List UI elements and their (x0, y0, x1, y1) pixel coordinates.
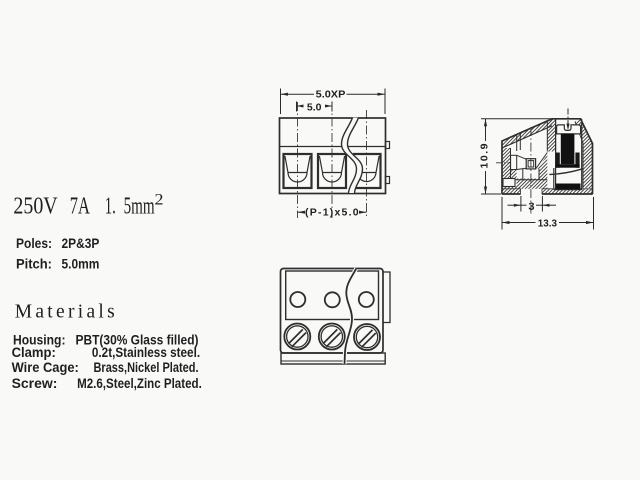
svg-text:2: 2 (155, 192, 164, 209)
svg-text:5mm: 5mm (124, 194, 155, 220)
svg-text:Screw:: Screw: (12, 376, 58, 391)
svg-text:0.2t,Stainless steel.: 0.2t,Stainless steel. (92, 345, 200, 360)
svg-text:Wire Cage:: Wire Cage: (12, 360, 79, 375)
svg-text:1.: 1. (105, 194, 116, 220)
svg-text:Poles:: Poles: (16, 235, 52, 251)
svg-text:5.0: 5.0 (307, 101, 322, 113)
svg-text:Materials: Materials (15, 301, 115, 322)
svg-text:M2.6,Steel,Zinc Plated.: M2.6,Steel,Zinc Plated. (77, 376, 202, 391)
svg-text:Clamp:: Clamp: (12, 345, 56, 360)
svg-text:Pitch:: Pitch: (16, 256, 52, 272)
svg-text:5.0mm: 5.0mm (62, 256, 100, 272)
svg-text:Brass,Nickel Plated.: Brass,Nickel Plated. (94, 360, 199, 375)
svg-text:13.3: 13.3 (538, 217, 557, 229)
svg-text:5.0XP: 5.0XP (316, 88, 346, 100)
svg-text:10.9: 10.9 (479, 143, 491, 168)
svg-text:250V: 250V (13, 194, 58, 220)
svg-text:2P&3P: 2P&3P (62, 235, 100, 251)
svg-text:7A: 7A (70, 194, 91, 220)
svg-text:3: 3 (528, 201, 534, 213)
svg-text:(P-1)x5.0: (P-1)x5.0 (305, 207, 359, 219)
